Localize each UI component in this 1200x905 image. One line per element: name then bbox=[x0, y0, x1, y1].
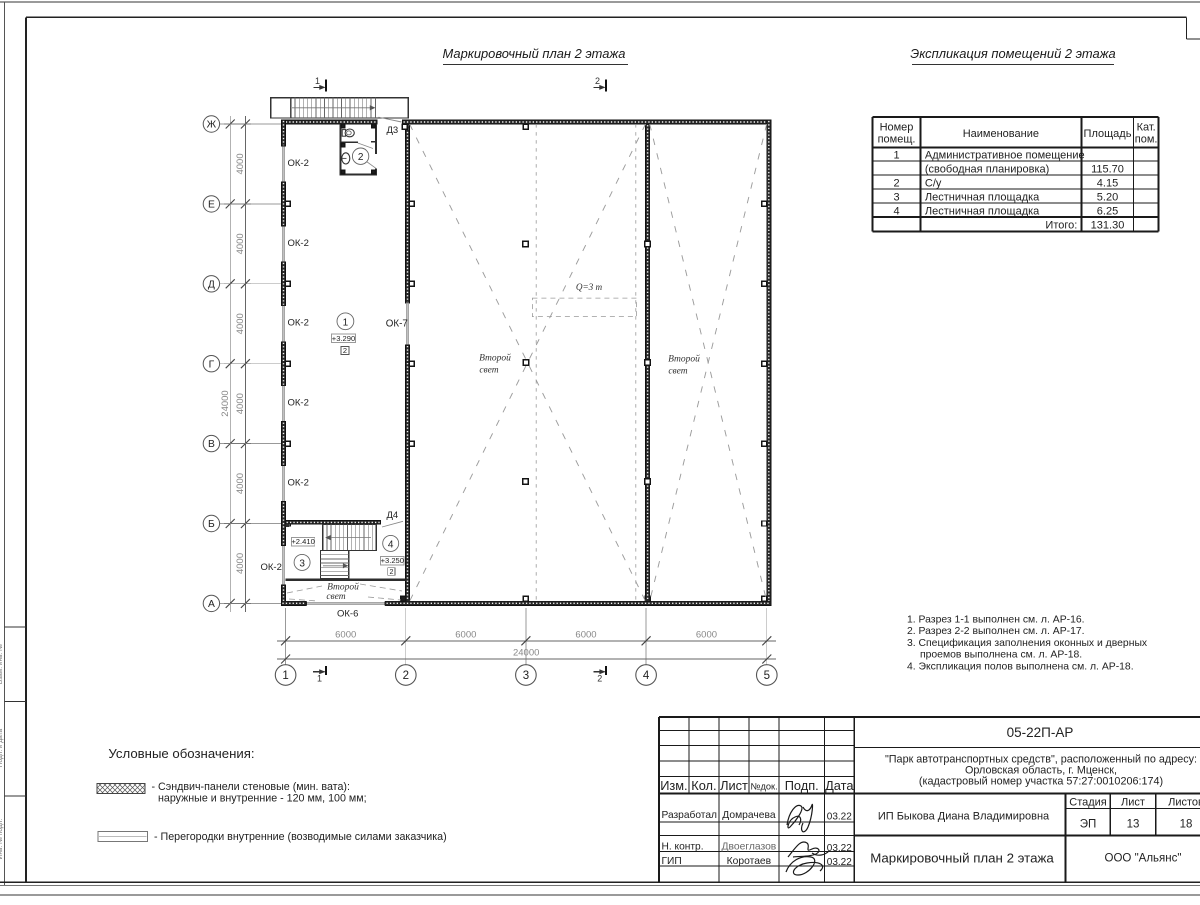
svg-text:Второй: Второй bbox=[327, 582, 359, 593]
svg-text:4000: 4000 bbox=[235, 313, 246, 334]
svg-text:Д: Д bbox=[208, 279, 215, 290]
svg-text:- Перегородки внутренние (возв: - Перегородки внутренние (возводимые сил… bbox=[154, 831, 447, 843]
svg-text:Подп.: Подп. bbox=[785, 778, 819, 793]
svg-text:03.22: 03.22 bbox=[827, 857, 852, 868]
svg-text:Д4: Д4 bbox=[387, 510, 399, 521]
svg-text:4: 4 bbox=[643, 670, 650, 682]
svg-text:2: 2 bbox=[597, 674, 602, 684]
svg-text:ОК-2: ОК-2 bbox=[288, 158, 309, 169]
svg-text:Наименование: Наименование bbox=[963, 128, 1039, 140]
svg-text:№док.: №док. bbox=[750, 781, 777, 791]
svg-text:+3.290: +3.290 bbox=[332, 334, 355, 343]
svg-text:Административное помещение: Административное помещение bbox=[925, 150, 1085, 162]
svg-text:Кат.: Кат. bbox=[1137, 122, 1156, 134]
svg-text:Домрачева: Домрачева bbox=[722, 810, 776, 821]
svg-text:ОК-2: ОК-2 bbox=[261, 562, 282, 573]
svg-text:2. Разрез 2-2 выполнен см. л.: 2. Разрез 2-2 выполнен см. л. АР-17. bbox=[907, 626, 1085, 637]
svg-text:свет: свет bbox=[668, 367, 687, 377]
svg-text:4: 4 bbox=[893, 206, 899, 218]
svg-text:2: 2 bbox=[403, 670, 409, 682]
svg-text:6.25: 6.25 bbox=[1097, 206, 1118, 218]
svg-text:Листов: Листов bbox=[1168, 797, 1200, 809]
svg-text:(кадастровый номер участка 57:: (кадастровый номер участка 57:27:0010206… bbox=[919, 776, 1163, 788]
svg-text:13: 13 bbox=[1127, 819, 1140, 831]
svg-text:3: 3 bbox=[299, 558, 305, 569]
svg-text:4. Экспликация полов выполнена: 4. Экспликация полов выполнена см. л. АР… bbox=[907, 661, 1134, 672]
svg-text:Итого:: Итого: bbox=[1045, 219, 1077, 231]
svg-text:2: 2 bbox=[389, 569, 393, 576]
svg-text:3. Спецификация заполнения око: 3. Спецификация заполнения оконных и две… bbox=[907, 637, 1148, 649]
svg-text:ОК-2: ОК-2 bbox=[288, 478, 309, 489]
svg-text:Разработал: Разработал bbox=[662, 809, 718, 821]
svg-text:Кол.: Кол. bbox=[691, 778, 716, 793]
svg-text:6000: 6000 bbox=[696, 629, 717, 640]
svg-text:131.30: 131.30 bbox=[1091, 219, 1125, 231]
svg-text:ОК-7: ОК-7 bbox=[386, 319, 408, 330]
svg-text:наружные и внутренние - 120 мм: наружные и внутренние - 120 мм, 100 мм; bbox=[158, 793, 367, 805]
svg-text:Орловская область, г. Мценск,: Орловская область, г. Мценск, bbox=[965, 764, 1117, 776]
svg-text:5.20: 5.20 bbox=[1097, 192, 1118, 204]
svg-text:1: 1 bbox=[315, 76, 320, 86]
svg-text:Лист: Лист bbox=[720, 778, 748, 793]
svg-text:ГИП: ГИП bbox=[662, 856, 682, 867]
svg-text:2: 2 bbox=[343, 346, 347, 355]
svg-text:3: 3 bbox=[893, 192, 899, 204]
svg-text:3: 3 bbox=[523, 670, 529, 682]
svg-text:свет: свет bbox=[326, 592, 345, 602]
svg-text:03.22: 03.22 bbox=[827, 843, 852, 854]
svg-text:ОК-2: ОК-2 bbox=[288, 318, 309, 329]
svg-text:А: А bbox=[208, 599, 215, 610]
svg-text:2: 2 bbox=[595, 76, 600, 86]
svg-text:4.15: 4.15 bbox=[1097, 178, 1118, 190]
svg-text:Ж: Ж bbox=[207, 120, 217, 131]
svg-text:6000: 6000 bbox=[575, 629, 596, 640]
svg-text:18: 18 bbox=[1180, 819, 1193, 831]
svg-text:Н. контр.: Н. контр. bbox=[662, 842, 704, 853]
svg-text:Е: Е bbox=[208, 200, 215, 211]
svg-text:5: 5 bbox=[764, 670, 770, 682]
svg-text:+3.250: +3.250 bbox=[381, 556, 404, 565]
svg-text:Инв. № подл.: Инв. № подл. bbox=[0, 819, 4, 860]
svg-text:4000: 4000 bbox=[235, 553, 246, 574]
svg-text:4000: 4000 bbox=[235, 393, 246, 414]
svg-text:Маркировочный план 2 этажа: Маркировочный план 2 этажа bbox=[443, 46, 626, 61]
svg-text:Номер: Номер bbox=[880, 122, 914, 134]
svg-text:115.70: 115.70 bbox=[1091, 164, 1124, 176]
svg-text:проемов выполнена см. л. АР-18: проемов выполнена см. л. АР-18. bbox=[920, 650, 1082, 661]
svg-text:05-22П-АР: 05-22П-АР bbox=[1007, 725, 1074, 740]
svg-text:Лестничная площадка: Лестничная площадка bbox=[925, 206, 1040, 218]
svg-text:03.22: 03.22 bbox=[827, 811, 852, 822]
svg-text:Подп. и дата: Подп. и дата bbox=[0, 728, 4, 767]
svg-text:(свободная планировка): (свободная планировка) bbox=[925, 164, 1049, 176]
svg-text:4000: 4000 bbox=[235, 233, 246, 254]
svg-text:1. Разрез 1-1 выполнен см. л.: 1. Разрез 1-1 выполнен см. л. АР-16. bbox=[907, 615, 1085, 626]
svg-text:Изм.: Изм. bbox=[660, 778, 687, 793]
svg-text:4: 4 bbox=[388, 539, 394, 550]
svg-text:Экспликация помещений 2 этажа: Экспликация помещений 2 этажа bbox=[910, 46, 1115, 61]
svg-text:1: 1 bbox=[317, 674, 322, 684]
svg-text:Лестничная площадка: Лестничная площадка bbox=[925, 192, 1040, 204]
svg-text:Маркировочный план 2 этажа: Маркировочный план 2 этажа bbox=[870, 851, 1054, 866]
svg-text:2: 2 bbox=[893, 178, 899, 190]
svg-text:- Сэндвич-панели стеновые (мин: - Сэндвич-панели стеновые (мин. вата): bbox=[152, 781, 350, 793]
svg-text:6000: 6000 bbox=[455, 629, 476, 640]
svg-text:Г: Г bbox=[209, 359, 215, 370]
svg-text:ООО "Альянс": ООО "Альянс" bbox=[1105, 853, 1182, 865]
svg-text:Условные обозначения:: Условные обозначения: bbox=[108, 746, 254, 761]
svg-text:24000: 24000 bbox=[513, 648, 539, 659]
svg-text:Площадь: Площадь bbox=[1084, 128, 1132, 140]
svg-text:Двоеглазов: Двоеглазов bbox=[722, 842, 777, 853]
svg-text:24000: 24000 bbox=[220, 390, 231, 416]
svg-text:пом.: пом. bbox=[1135, 134, 1158, 146]
svg-text:2: 2 bbox=[358, 152, 364, 163]
svg-text:Б: Б bbox=[208, 519, 215, 530]
svg-text:4000: 4000 bbox=[235, 473, 246, 494]
svg-text:Коротаев: Коротаев bbox=[727, 856, 772, 867]
svg-text:В: В bbox=[208, 439, 215, 450]
svg-text:Лист: Лист bbox=[1121, 797, 1145, 809]
svg-text:Д3: Д3 bbox=[387, 125, 399, 136]
svg-text:Взам. инв. №: Взам. инв. № bbox=[0, 644, 4, 684]
svg-text:4000: 4000 bbox=[235, 153, 246, 174]
svg-text:6000: 6000 bbox=[335, 629, 356, 640]
svg-text:1: 1 bbox=[343, 317, 349, 328]
svg-text:помещ.: помещ. bbox=[878, 134, 916, 146]
svg-text:Стадия: Стадия bbox=[1069, 797, 1107, 809]
svg-text:свет: свет bbox=[479, 365, 498, 375]
svg-text:1: 1 bbox=[282, 670, 288, 682]
svg-text:ОК-6: ОК-6 bbox=[337, 609, 358, 620]
svg-text:ИП Быкова Диана Владимировна: ИП Быкова Диана Владимировна bbox=[878, 811, 1050, 823]
svg-text:+2.410: +2.410 bbox=[291, 537, 314, 546]
svg-text:ОК-2: ОК-2 bbox=[288, 398, 309, 409]
svg-text:Дата: Дата bbox=[825, 778, 854, 793]
svg-text:ЭП: ЭП bbox=[1080, 819, 1097, 831]
svg-text:Второй: Второй bbox=[668, 354, 700, 365]
svg-text:Второй: Второй bbox=[479, 352, 511, 363]
svg-text:Q=3 т: Q=3 т bbox=[576, 282, 603, 292]
svg-text:ОК-2: ОК-2 bbox=[288, 238, 309, 249]
svg-text:С/у: С/у bbox=[925, 178, 942, 190]
svg-text:1: 1 bbox=[893, 150, 899, 162]
